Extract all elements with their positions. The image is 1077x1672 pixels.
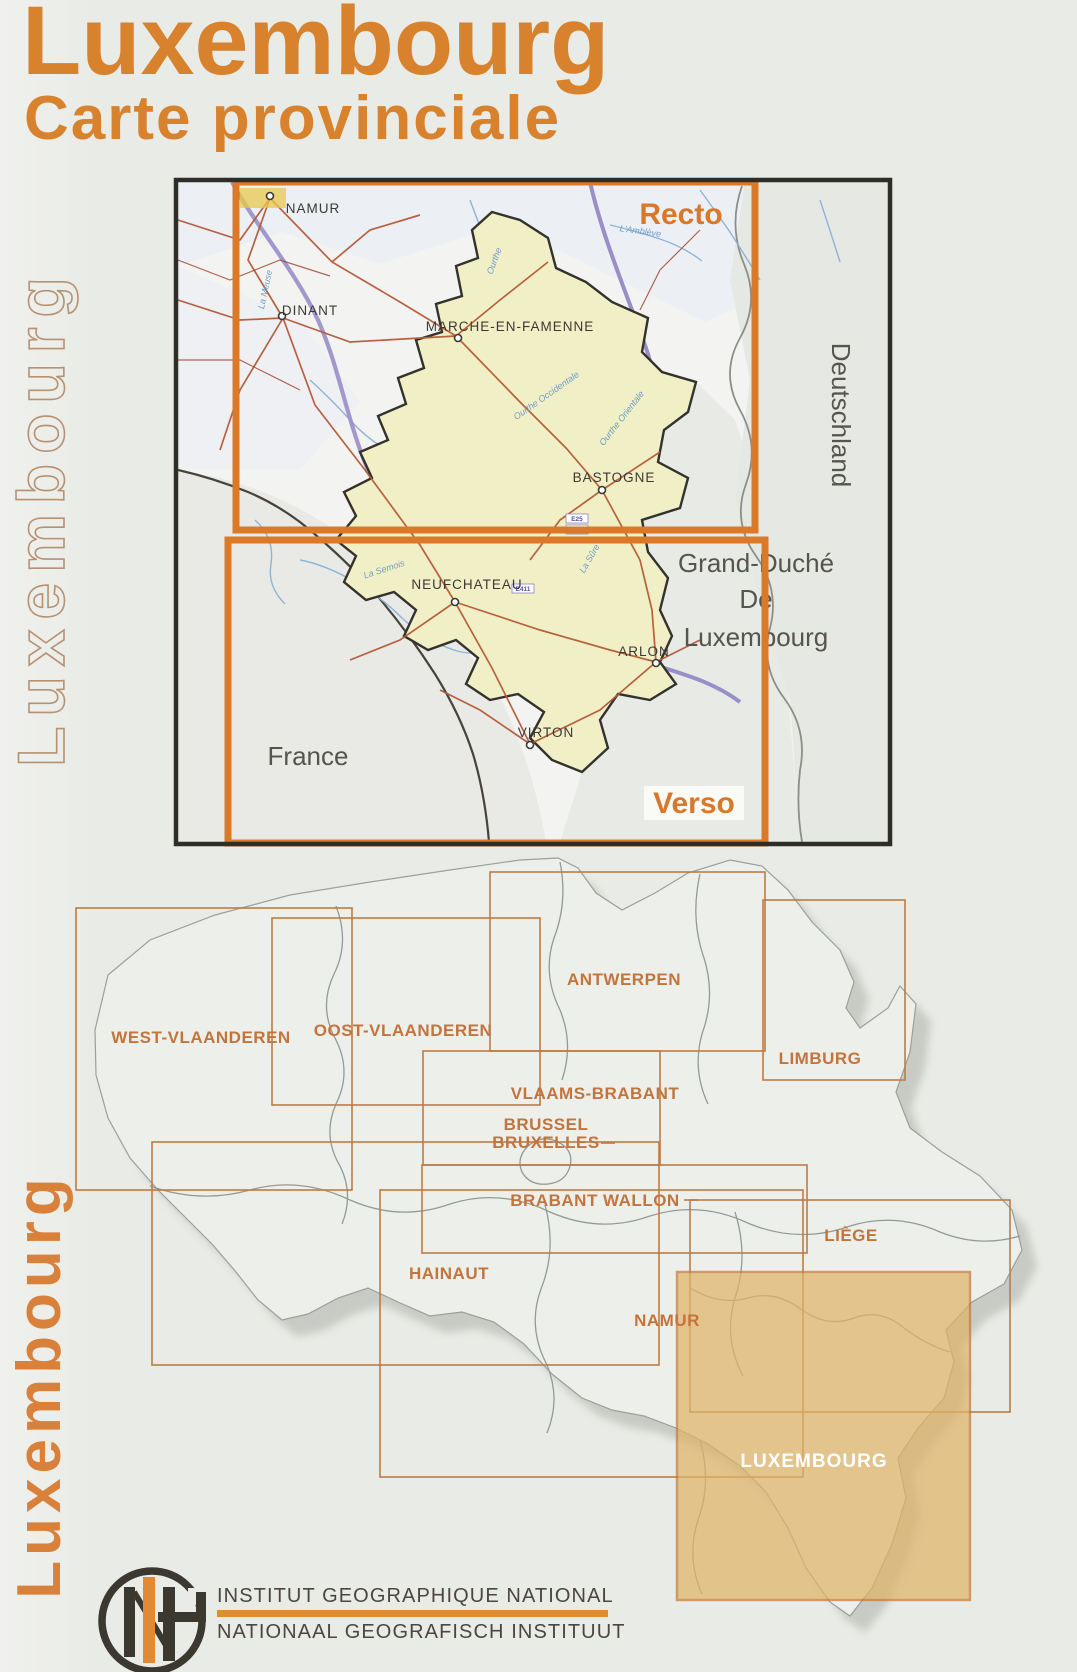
logo-g-hook xyxy=(196,1592,206,1622)
verso-label: Verso xyxy=(653,787,735,820)
germany-label: Deutschland xyxy=(826,343,856,488)
logo-i-orange-bar xyxy=(143,1577,155,1663)
province-label-hainaut: HAINAUT xyxy=(409,1264,489,1283)
bottom-map: WEST-VLAANDEREN OOST-VLAANDEREN ANTWERPE… xyxy=(76,858,1037,1633)
province-label-brabant-wallon: BRABANT WALLON xyxy=(510,1191,679,1210)
city-label-marche-en-famenne: MARCHE-EN-FAMENNE xyxy=(426,319,595,334)
cover-graphics: E25 E411 E411 La Meuse Ourthe L'Amblève … xyxy=(0,0,1077,1672)
province-label-bruxelles: BRUXELLES xyxy=(492,1133,599,1152)
top-map: E25 E411 E411 La Meuse Ourthe L'Amblève … xyxy=(176,180,890,844)
publisher-name-fr: INSTITUT GEOGRAPHIQUE NATIONAL xyxy=(217,1585,614,1608)
city-label-neufchateau: NEUFCHATEAU xyxy=(411,577,522,592)
city-label-arlon: ARLON xyxy=(618,644,670,659)
province-label-namur: NAMUR xyxy=(634,1311,700,1330)
province-label-liege: LIÈGE xyxy=(824,1226,878,1245)
france-label: France xyxy=(268,741,349,771)
grand-duchy-label-line1: Grand-Duché xyxy=(678,548,834,578)
province-label-luxembourg-highlight: LUXEMBOURG xyxy=(740,1451,887,1472)
side-text-bottom: Luxembourg xyxy=(4,1158,80,1614)
province-label-west-vlaanderen: WEST-VLAANDEREN xyxy=(111,1028,290,1047)
logo-n-left-bar xyxy=(124,1587,135,1657)
province-label-limburg: LIMBURG xyxy=(779,1049,862,1068)
city-label-namur: NAMUR xyxy=(286,201,341,216)
publisher-name-nl: NATIONAAL GEOGRAFISCH INSTITUUT xyxy=(217,1621,626,1644)
province-label-brussel: BRUSSEL xyxy=(504,1115,589,1134)
province-label-antwerpen: ANTWERPEN xyxy=(567,970,681,989)
province-label-oost-vlaanderen: OOST-VLAANDEREN xyxy=(314,1021,492,1040)
city-label-dinant: DINANT xyxy=(282,303,338,318)
page-subtitle: Carte provinciale xyxy=(24,88,561,150)
namur-urban-area xyxy=(240,188,286,208)
footer-divider xyxy=(217,1610,608,1617)
grand-duchy-label-line3: Luxembourg xyxy=(684,622,829,652)
city-label-bastogne: BASTOGNE xyxy=(573,470,656,485)
side-text-top: Luxembourg xyxy=(3,257,81,777)
recto-label: Recto xyxy=(639,198,722,231)
ngi-logo xyxy=(102,1571,210,1671)
page-title: Luxembourg xyxy=(22,0,609,89)
sheet-luxembourg-highlight xyxy=(677,1272,970,1600)
shield-e25: E25 xyxy=(571,516,583,523)
city-label-virton: VIRTON xyxy=(518,725,575,740)
province-label-vlaams-brabant: VLAAMS-BRABANT xyxy=(511,1084,680,1103)
logo-n-right-bar xyxy=(163,1587,175,1661)
